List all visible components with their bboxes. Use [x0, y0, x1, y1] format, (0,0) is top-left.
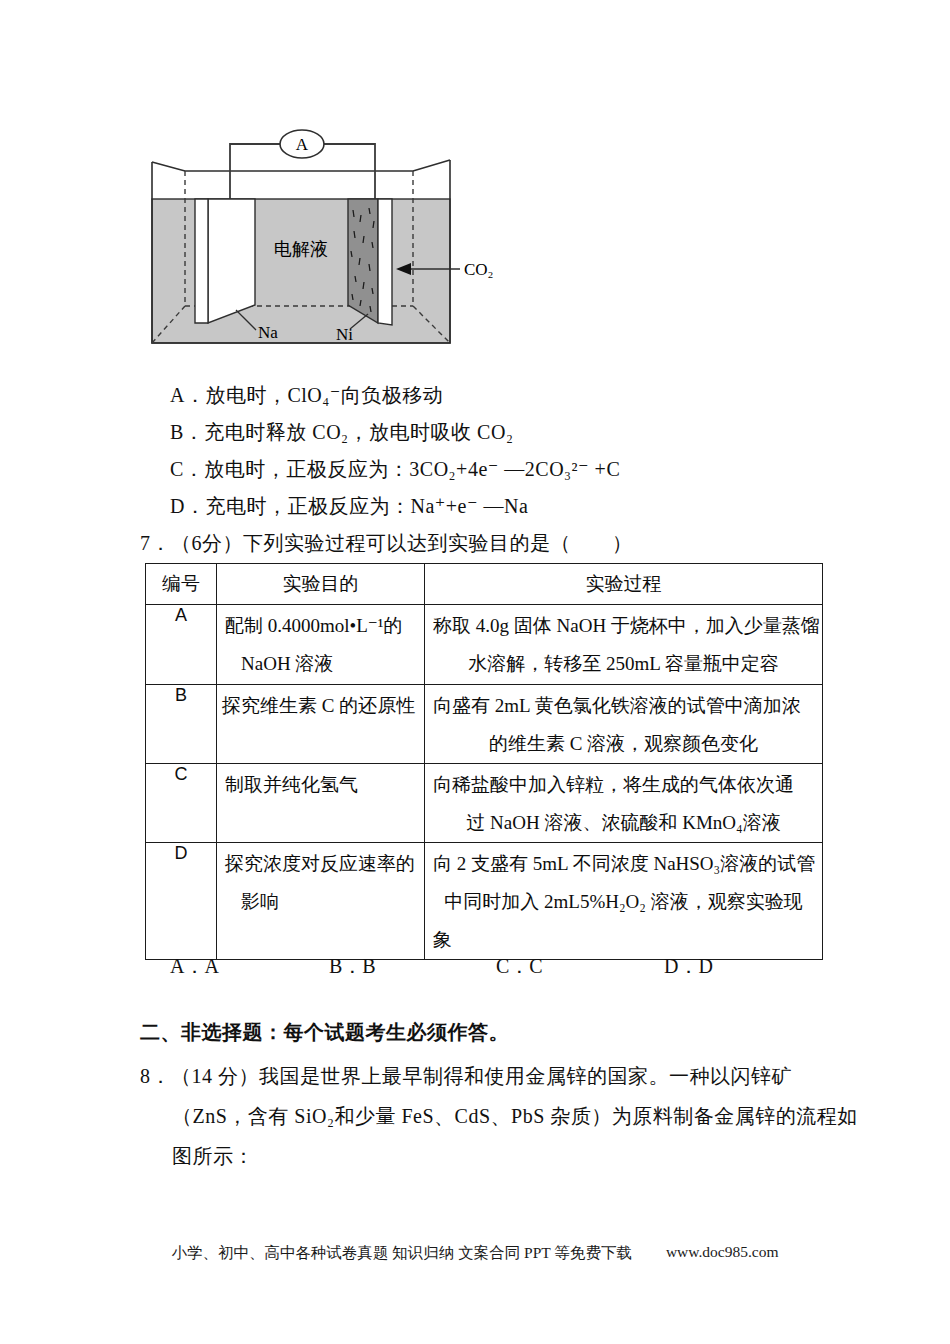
answer-option-c: C．C — [496, 953, 543, 980]
option-c: C．放电时，正极反应为：3CO₂+4e⁻ —2CO₃²⁻ +C — [170, 456, 620, 483]
purpose-line: 配制 0.4000mol•L⁻¹的 — [217, 605, 424, 645]
process-line: 向盛有 2mL 黄色氯化铁溶液的试管中滴加浓 — [425, 685, 822, 725]
process-line: 向稀盐酸中加入锌粒，将生成的气体依次通 — [425, 764, 822, 804]
answer-option-d: D．D — [664, 953, 713, 980]
question8-line: （ZnS，含有 SiO₂和少量 FeS、CdS、PbS 杂质）为原料制备金属锌的… — [172, 1103, 858, 1130]
footer-promo-text: 小学、初中、高中各种试卷真题 知识归纳 文案合同 PPT 等免费下载 — [171, 1243, 631, 1264]
question8-line: 8．（14 分）我国是世界上最早制得和使用金属锌的国家。一种以闪锌矿 — [140, 1063, 792, 1090]
header-process: 实验过程 — [425, 564, 823, 605]
purpose-line: 探究浓度对反应速率的 — [217, 843, 424, 883]
ammeter-label: A — [296, 135, 309, 154]
nickel-electrode-label: Ni — [336, 325, 353, 344]
header-purpose: 实验目的 — [217, 564, 425, 605]
table-row: B 探究维生素 C 的还原性 向盛有 2mL 黄色氯化铁溶液的试管中滴加浓 的维… — [146, 685, 823, 764]
table-row: C 制取并纯化氢气 向稀盐酸中加入锌粒，将生成的气体依次通 过 NaOH 溶液、… — [146, 764, 823, 843]
row-process: 向稀盐酸中加入锌粒，将生成的气体依次通 过 NaOH 溶液、浓硫酸和 KMnO₄… — [425, 764, 823, 843]
purpose-line: 影响 — [217, 883, 424, 921]
question7-stem: 7．（6分）下列实验过程可以达到实验目的是（ ） — [140, 530, 633, 557]
table-row: D 探究浓度对反应速率的 影响 向 2 支盛有 5mL 不同浓度 NaHSO₃溶… — [146, 843, 823, 960]
process-line: 的维生素 C 溶液，观察颜色变化 — [425, 725, 822, 763]
process-line: 水溶解，转移至 250mL 容量瓶中定容 — [425, 645, 822, 683]
row-id: C — [146, 764, 217, 843]
header-id: 编号 — [146, 564, 217, 605]
table-header-row: 编号 实验目的 实验过程 — [146, 564, 823, 605]
answer-option-b: B．B — [329, 953, 376, 980]
row-process: 向盛有 2mL 黄色氯化铁溶液的试管中滴加浓 的维生素 C 溶液，观察颜色变化 — [425, 685, 823, 764]
process-line: 称取 4.0g 固体 NaOH 于烧杯中，加入少量蒸馏 — [425, 605, 822, 645]
purpose-line: 制取并纯化氢气 — [217, 764, 424, 804]
purpose-line: 探究维生素 C 的还原性 — [217, 685, 424, 725]
process-line: 过 NaOH 溶液、浓硫酸和 KMnO₄溶液 — [425, 804, 822, 842]
process-line: 象 — [425, 921, 822, 959]
answer-option-a: A．A — [170, 953, 219, 980]
row-process: 向 2 支盛有 5mL 不同浓度 NaHSO₃溶液的试管 中同时加入 2mL5%… — [425, 843, 823, 960]
nickel-electrode-side — [378, 199, 392, 325]
row-purpose: 探究维生素 C 的还原性 — [217, 685, 425, 764]
table-row: A 配制 0.4000mol•L⁻¹的 NaOH 溶液 称取 4.0g 固体 N… — [146, 605, 823, 685]
experiments-table: 编号 实验目的 实验过程 A 配制 0.4000mol•L⁻¹的 NaOH 溶液… — [145, 563, 823, 960]
co2-label: CO₂ — [464, 260, 494, 279]
row-purpose: 制取并纯化氢气 — [217, 764, 425, 843]
option-a: A．放电时，ClO₄⁻向负极移动 — [170, 382, 443, 409]
exam-document-page: A Na Ni 电解液 CO₂ A．放电时，ClO₄⁻向负极移动 — [0, 0, 950, 1344]
electrolysis-cell-diagram: A Na Ni 电解液 CO₂ — [140, 118, 510, 353]
electrolyte-label: 电解液 — [274, 239, 328, 259]
sodium-electrode-label: Na — [258, 323, 278, 342]
page-footer: 小学、初中、高中各种试卷真题 知识归纳 文案合同 PPT 等免费下载 www.d… — [0, 1243, 950, 1264]
footer-site-url: www.doc985.com — [666, 1243, 779, 1264]
option-b: B．充电时释放 CO₂，放电时吸收 CO₂ — [170, 419, 513, 446]
row-purpose: 配制 0.4000mol•L⁻¹的 NaOH 溶液 — [217, 605, 425, 685]
question8-line: 图所示： — [172, 1143, 254, 1170]
sodium-electrode — [195, 199, 255, 323]
section2-heading: 二、非选择题：每个试题考生必须作答。 — [140, 1019, 509, 1046]
option-d: D．充电时，正极反应为：Na⁺+e⁻ —Na — [170, 493, 528, 520]
row-id: A — [146, 605, 217, 685]
row-process: 称取 4.0g 固体 NaOH 于烧杯中，加入少量蒸馏 水溶解，转移至 250m… — [425, 605, 823, 685]
process-line: 中同时加入 2mL5%H₂O₂ 溶液，观察实验现 — [425, 883, 822, 921]
row-purpose: 探究浓度对反应速率的 影响 — [217, 843, 425, 960]
row-id: B — [146, 685, 217, 764]
purpose-line: NaOH 溶液 — [217, 645, 424, 683]
row-id: D — [146, 843, 217, 960]
process-line: 向 2 支盛有 5mL 不同浓度 NaHSO₃溶液的试管 — [425, 843, 822, 883]
nickel-electrode — [348, 199, 378, 323]
